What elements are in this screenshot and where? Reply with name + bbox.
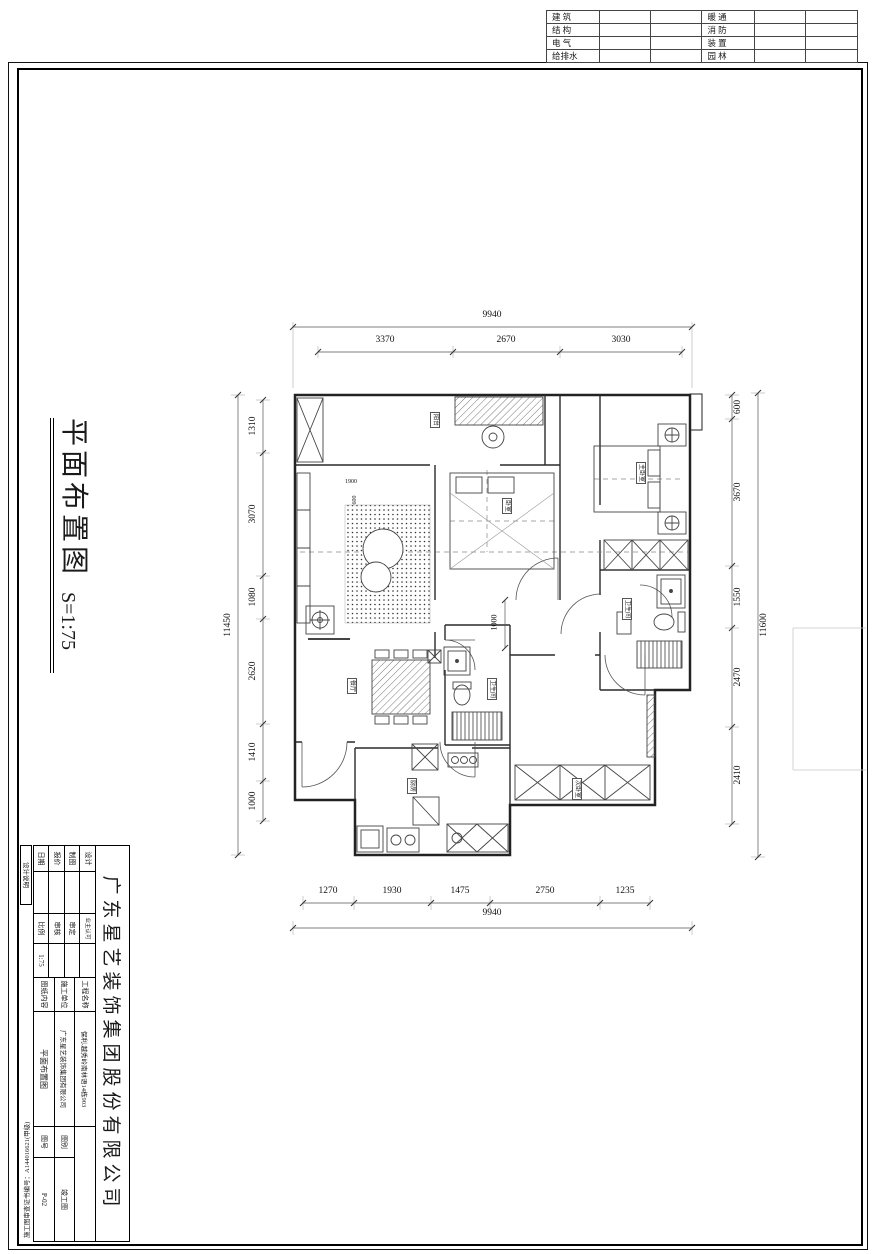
room-label-kitchen: 厨房 [407,778,417,794]
dim-label: 1080 [248,577,258,617]
certificate-number: 施工图审查证书编号：A144016621(甲级) [21,1038,32,1238]
dim-label: 3670 [733,472,743,512]
dim-label: 1410 [248,732,258,772]
drawing-sheet: { "sheet": { "top_table": { "rows": [ ["… [0,0,878,1254]
dim-label: 1000 [248,781,258,821]
field-label: 制图 [64,846,80,871]
field-label: 日期 [34,846,49,871]
room-label-master-bedroom: 主卧室 [636,462,646,484]
room-label-bathroom-2: 卫生间 [487,678,497,700]
design-notes-box: 设计说明 [20,845,32,905]
title-block-labels-mid: 业主认可 审定 审核 比例 [34,914,95,944]
dim-label: 3370 [355,335,415,345]
field-label: 审核 [49,914,65,943]
field-value [80,944,96,977]
field-label: 业主认可 [80,914,96,943]
dim-label: 1310 [248,406,258,446]
dim-label: 11450 [223,595,233,655]
dim-label: 2750 [515,886,575,896]
room-label-dining: 餐厅 [347,678,357,694]
dim-label: 2470 [733,657,743,697]
title-block-labels-left: 设计 制图 报价 日期 [34,846,95,872]
field-label: 图别 [55,1127,75,1158]
construction-unit: 广东星艺装饰集团有限公司 [54,1012,75,1126]
field-value: 1:75 [34,944,49,977]
field-label: 图纸内容 [34,978,54,1011]
dim-label: 1930 [362,886,422,896]
dim-label: 2670 [476,335,536,345]
field-label: 比例 [34,914,49,943]
company-name: 广东星艺装饰集团股份有限公司 [95,846,129,1241]
dim-label: 9940 [462,908,522,918]
drawing-number: P-02 [40,1158,48,1241]
field-label: 工程名称 [74,978,95,1011]
title-block-values-mid: 1:75 [34,944,95,978]
dim-label: 1550 [733,577,743,617]
field-label: 报价 [49,846,65,871]
dim-label: 2410 [733,755,743,795]
field-label: 审定 [64,914,80,943]
field-label: 施工单位 [54,978,75,1011]
title-block: 广东星艺装饰集团股份有限公司 设计 制图 报价 日期 业主认可 审定 审核 比例… [33,845,130,1242]
title-block-meta: 图别 竣工图 图号 P-02 [34,1127,95,1241]
drawing-content: 平面布置图 [34,1012,54,1126]
dim-label: 3030 [591,335,651,345]
dim-label: 11600 [759,595,769,655]
dim-label: 2620 [248,651,258,691]
room-label-second-bedroom: 次卧室 [572,778,582,800]
project-name: 保利.越秀岭南林语14栋903 [74,1012,95,1126]
field-value [49,944,65,977]
dim-label: 1235 [595,886,655,896]
dim-label: 1000 [490,603,499,643]
adjacent-unit-ghost [793,628,866,770]
room-label-bathroom: 卫生间 [622,598,632,620]
floor-plan-drawing [0,0,878,1254]
dim-label: 1475 [430,886,490,896]
field-value [64,944,80,977]
dim-label: 600 [733,387,743,427]
dim-label: 9940 [462,310,522,320]
room-label-bedroom: 卧室 [502,498,512,514]
room-label-balcony: 阳台 [430,412,440,428]
dim-label: 600 [352,485,358,515]
field-label: 设计 [80,846,96,871]
title-block-info-values: 保利.越秀岭南林语14栋903 广东星艺装饰集团有限公司 平面布置图 [34,1012,95,1127]
drawing-category: 竣工图 [60,1158,70,1241]
dim-label: 3070 [248,494,258,534]
field-label: 图号 [34,1127,54,1158]
title-block-info-labels: 工程名称 施工单位 图纸内容 [34,978,95,1012]
title-block-values-left [34,872,95,914]
dim-label: 1270 [298,886,358,896]
dim-label: 1900 [336,479,366,485]
